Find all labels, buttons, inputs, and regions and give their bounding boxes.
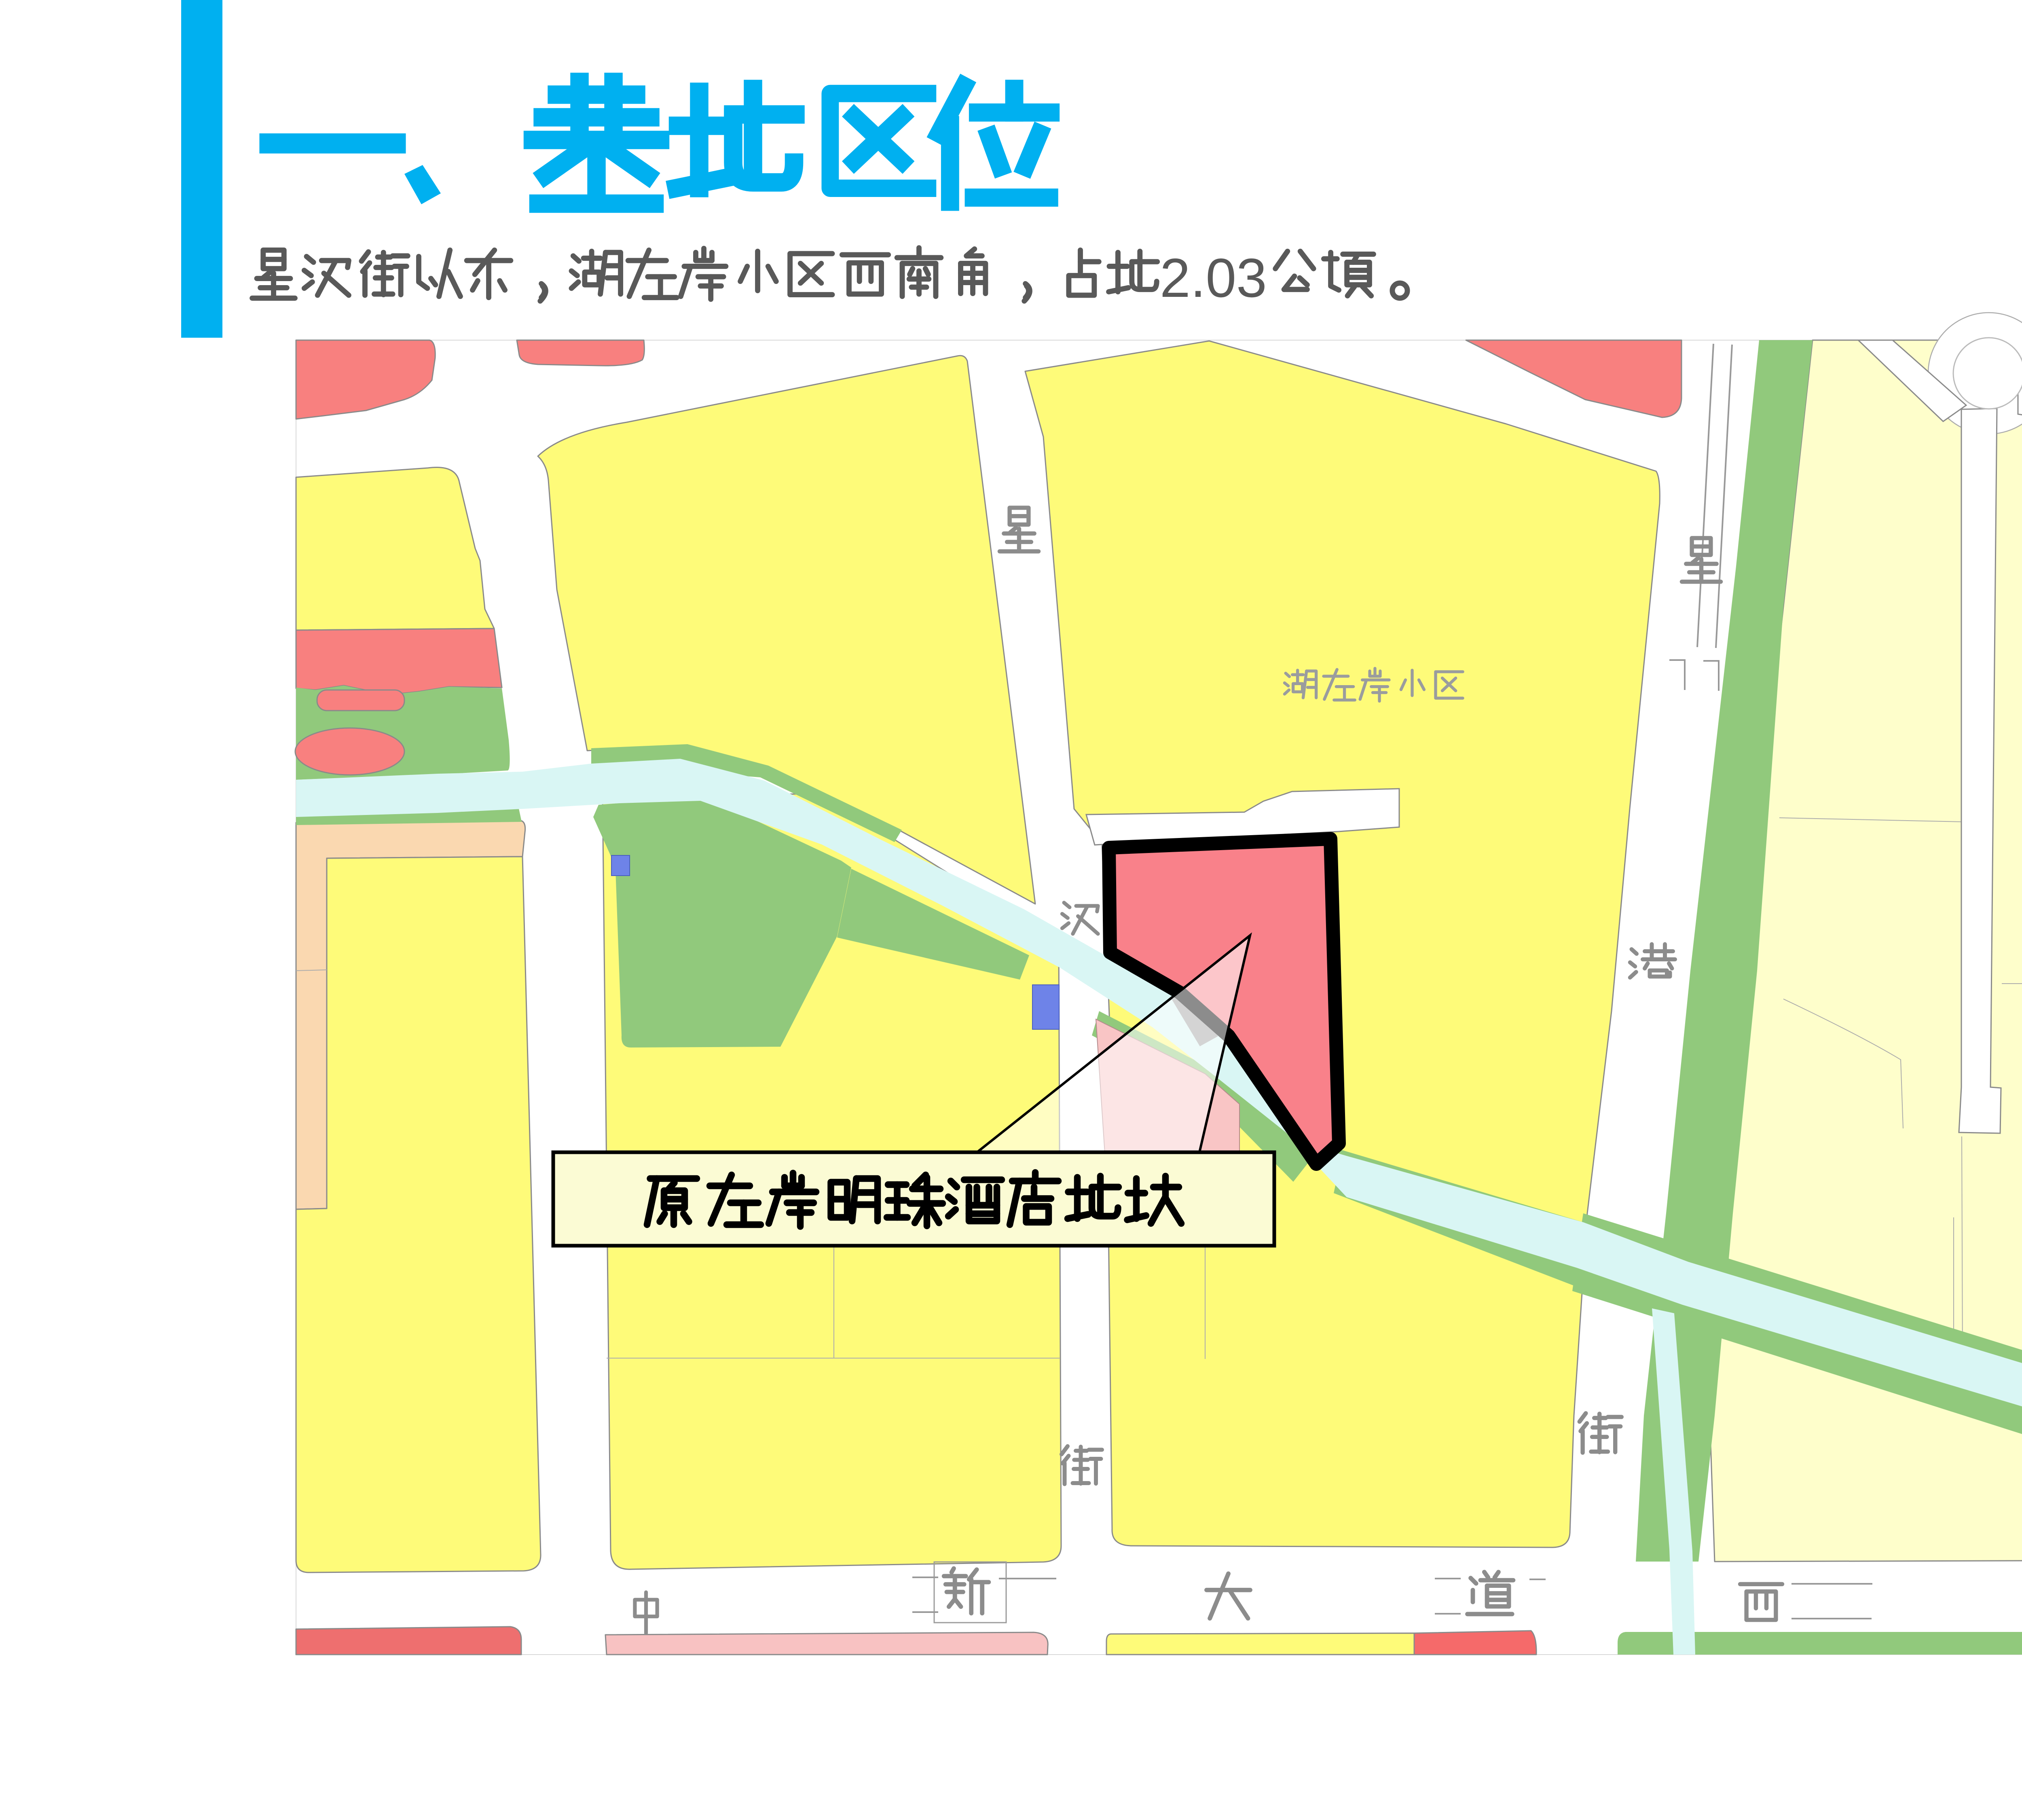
svg-text:2.03: 2.03 xyxy=(1160,247,1267,309)
